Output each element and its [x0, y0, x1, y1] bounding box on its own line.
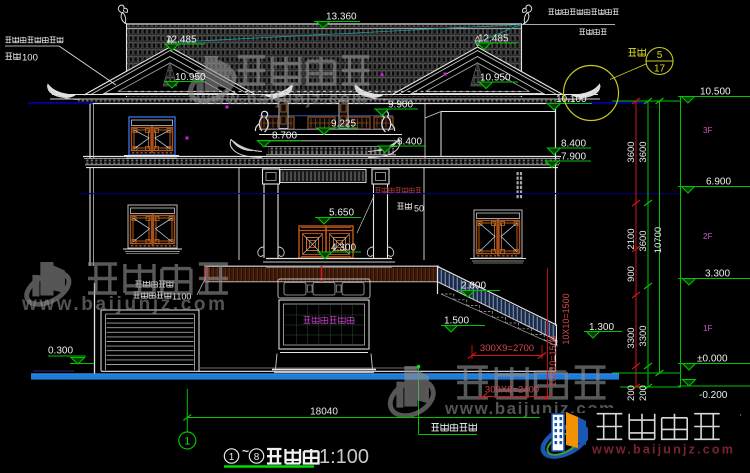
svg-text:10.950: 10.950 — [175, 72, 206, 83]
svg-text:12.485: 12.485 — [166, 35, 197, 46]
svg-text:17: 17 — [654, 64, 666, 75]
svg-text:1: 1 — [184, 436, 190, 448]
svg-text:3.300: 3.300 — [705, 269, 730, 280]
svg-text:7.900: 7.900 — [561, 152, 586, 163]
svg-text:3600: 3600 — [638, 141, 649, 162]
svg-text:www.baijunjz.com: www.baijunjz.com — [21, 294, 228, 315]
svg-text:10X10=1500: 10X10=1500 — [561, 293, 571, 344]
svg-text:5.650: 5.650 — [329, 208, 354, 219]
svg-text:10.950: 10.950 — [480, 73, 511, 84]
svg-text:-0.200: -0.200 — [699, 390, 728, 401]
svg-text:200: 200 — [638, 385, 649, 401]
svg-text:13.360: 13.360 — [326, 12, 357, 23]
svg-text:10700: 10700 — [653, 227, 664, 253]
svg-text:www.baijunjz.com: www.baijunjz.com — [196, 90, 368, 108]
svg-text:12.485: 12.485 — [478, 34, 509, 45]
svg-text:1.500: 1.500 — [444, 316, 469, 327]
svg-text:8.400: 8.400 — [397, 137, 422, 148]
svg-text:100: 100 — [22, 53, 38, 64]
svg-text:3300: 3300 — [638, 325, 649, 346]
svg-text:0.300: 0.300 — [48, 346, 73, 357]
svg-text:10X10=1500: 10X10=1500 — [548, 335, 558, 386]
svg-text:6.900: 6.900 — [706, 177, 731, 188]
svg-text:900: 900 — [626, 266, 637, 282]
svg-text:300X9=2700: 300X9=2700 — [480, 343, 534, 354]
svg-text:3300: 3300 — [626, 327, 637, 348]
svg-text:10.100: 10.100 — [556, 94, 587, 105]
svg-text:8: 8 — [254, 452, 260, 463]
svg-text:8.700: 8.700 — [272, 131, 297, 142]
svg-text:300X8=2400: 300X8=2400 — [485, 385, 539, 396]
svg-text:2100: 2100 — [626, 228, 637, 249]
svg-text:1.300: 1.300 — [589, 322, 614, 333]
svg-text:200: 200 — [626, 385, 637, 401]
svg-text:8.400: 8.400 — [561, 139, 586, 150]
svg-text:4.300: 4.300 — [331, 243, 356, 254]
svg-text:10.500: 10.500 — [700, 87, 731, 98]
svg-text:18040: 18040 — [310, 407, 338, 418]
svg-text:5: 5 — [657, 50, 663, 61]
svg-text:~: ~ — [242, 444, 249, 458]
svg-text:3F: 3F — [703, 126, 712, 135]
svg-text:50: 50 — [414, 204, 424, 214]
svg-text:9.900: 9.900 — [388, 100, 413, 111]
svg-text:2.800: 2.800 — [461, 281, 486, 292]
svg-text:3600: 3600 — [626, 141, 637, 162]
svg-text:±0.000: ±0.000 — [697, 354, 728, 365]
svg-text:www.baijunjz.com: www.baijunjz.com — [591, 443, 735, 457]
svg-text:1F: 1F — [703, 324, 712, 333]
svg-text:1:100: 1:100 — [319, 446, 369, 468]
svg-text:2F: 2F — [703, 232, 712, 241]
svg-text:3600: 3600 — [638, 230, 649, 251]
svg-text:9.225: 9.225 — [331, 119, 356, 130]
svg-text:1: 1 — [229, 452, 235, 463]
